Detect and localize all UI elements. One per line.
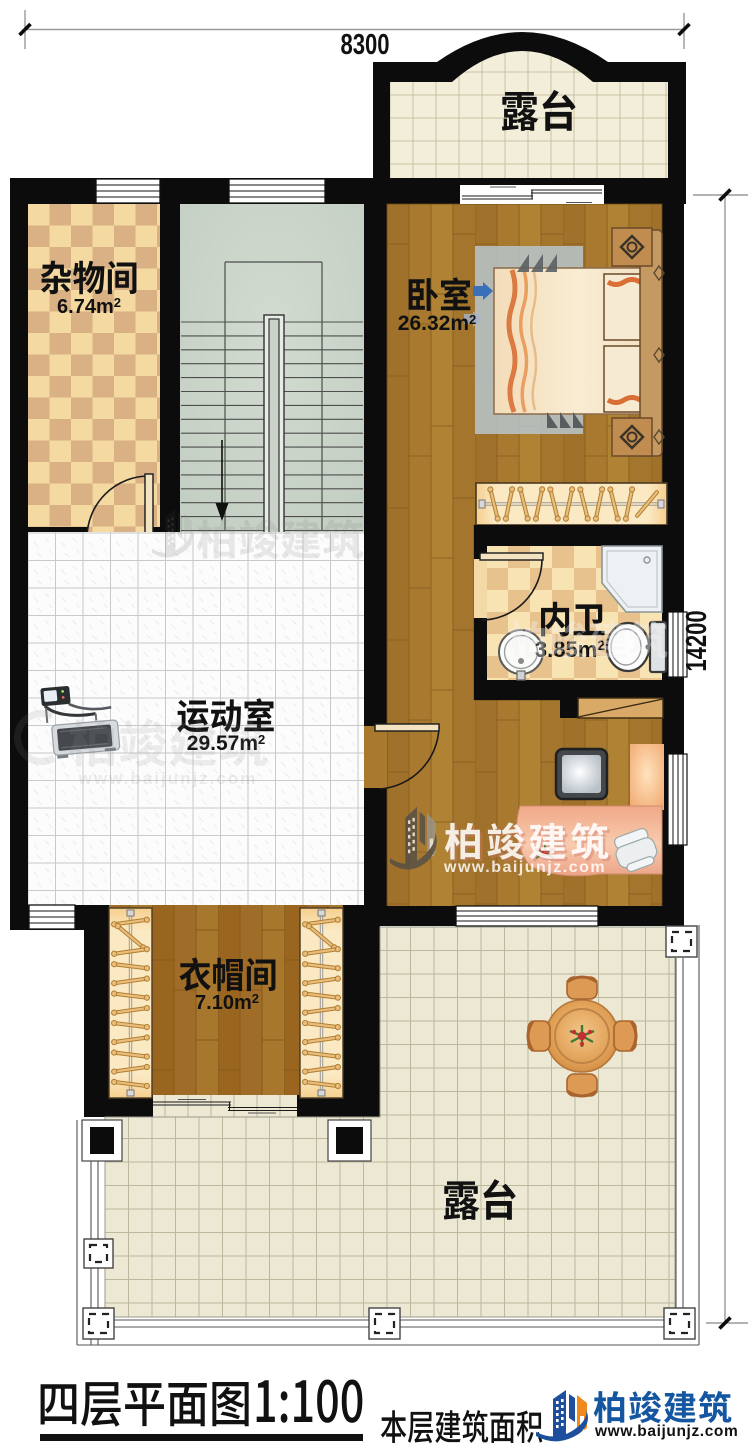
svg-text:www.baijunjz.com: www.baijunjz.com: [443, 859, 606, 876]
svg-text:7.10m2: 7.10m2: [195, 991, 259, 1014]
svg-text:www.baijunjz.com: www.baijunjz.com: [78, 769, 258, 788]
svg-text:8300: 8300: [340, 29, 389, 60]
svg-text:www.baijunjz.com: www.baijunjz.com: [594, 1423, 738, 1440]
svg-text:14200: 14200: [681, 610, 712, 671]
svg-text:6.74m2: 6.74m2: [57, 295, 121, 318]
svg-text:26.32m2: 26.32m2: [398, 312, 476, 335]
